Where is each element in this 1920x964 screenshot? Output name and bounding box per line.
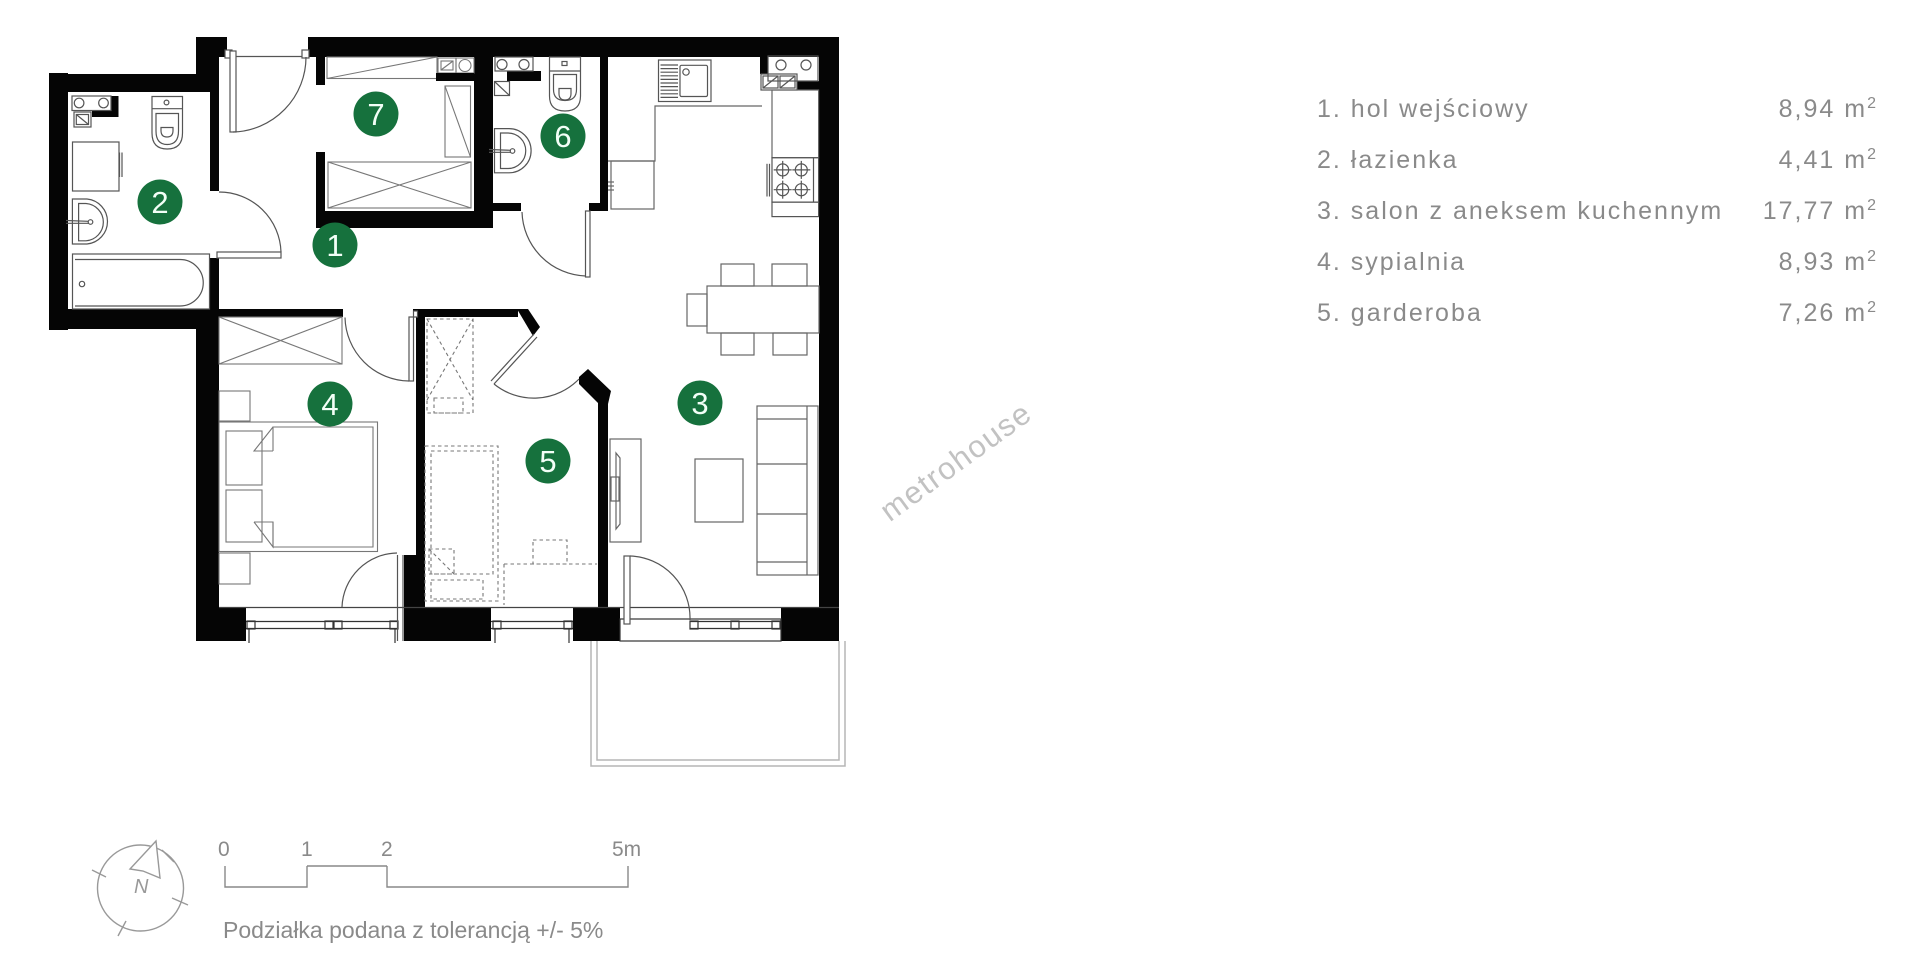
svg-text:4. sypialnia: 4. sypialnia [1317, 248, 1466, 276]
svg-text:7: 7 [367, 97, 384, 132]
svg-text:1. hol wejściowy: 1. hol wejściowy [1317, 95, 1530, 123]
svg-text:2. łazienka: 2. łazienka [1317, 146, 1459, 174]
svg-text:1: 1 [326, 228, 343, 263]
svg-text:1: 1 [301, 838, 313, 861]
svg-text:2: 2 [381, 838, 393, 861]
svg-text:8,94 m2: 8,94 m2 [1779, 95, 1878, 123]
svg-text:0: 0 [218, 838, 230, 861]
svg-text:6: 6 [554, 119, 571, 154]
svg-text:4: 4 [321, 387, 338, 422]
svg-text:17,77 m2: 17,77 m2 [1763, 197, 1878, 225]
svg-text:8,93 m2: 8,93 m2 [1779, 248, 1878, 276]
svg-text:Podziałka podana z tolerancją: Podziałka podana z tolerancją +/- 5% [223, 917, 603, 943]
svg-text:3: 3 [691, 386, 708, 421]
svg-text:N: N [134, 876, 149, 898]
svg-text:5: 5 [539, 444, 556, 479]
svg-text:2: 2 [151, 185, 168, 220]
svg-text:3. salon z aneksem kuchennym: 3. salon z aneksem kuchennym [1317, 197, 1723, 225]
svg-text:5. garderoba: 5. garderoba [1317, 299, 1483, 327]
svg-text:metrohouse: metrohouse [873, 395, 1038, 528]
svg-text:7,26 m2: 7,26 m2 [1779, 299, 1878, 327]
svg-text:5m: 5m [612, 838, 641, 861]
svg-text:4,41 m2: 4,41 m2 [1779, 146, 1878, 174]
